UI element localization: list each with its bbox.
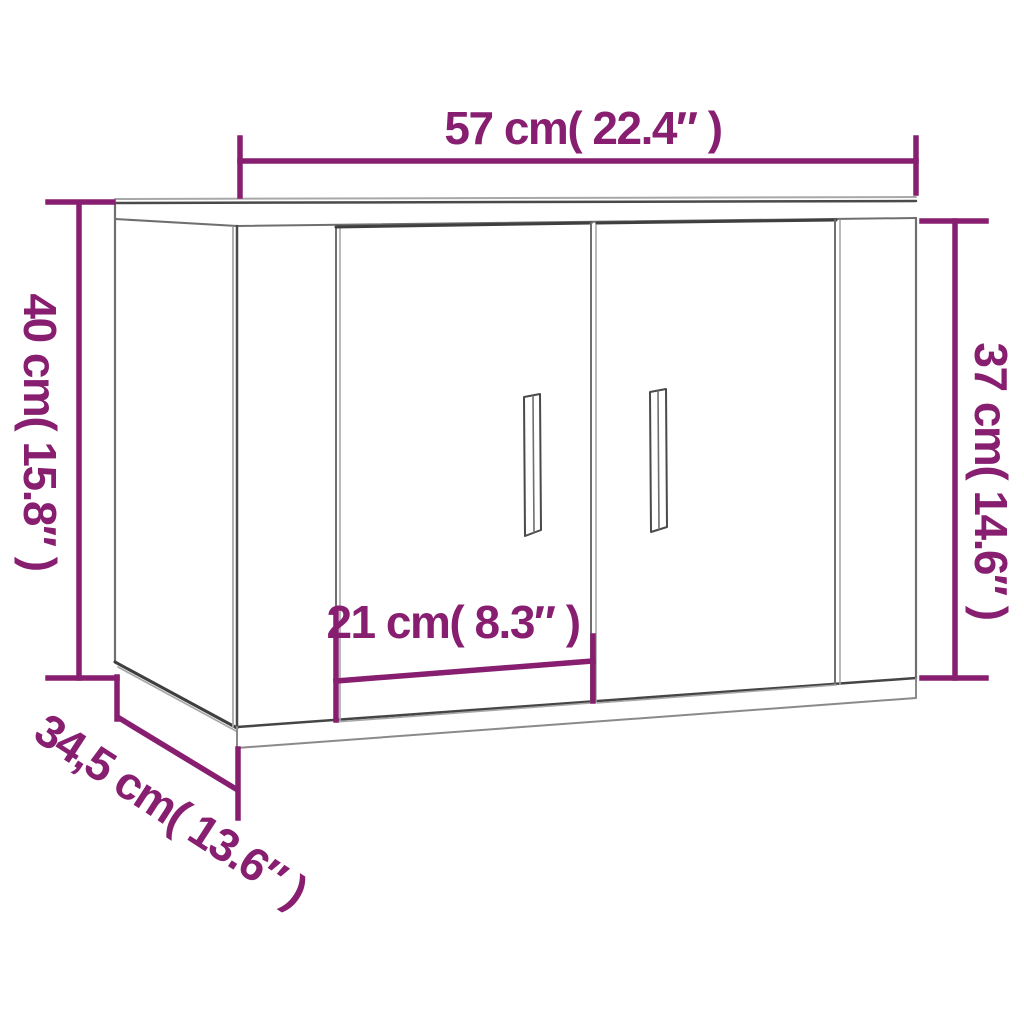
cabinet-bottom-strip — [237, 678, 916, 748]
dimension-diagram-canvas: 57 cm( 22.4″ ) 40 cm( 15.8″ ) 37 cm( 14.… — [0, 0, 1024, 1024]
cabinet-right-door — [597, 220, 840, 703]
dimension-height-right-label: 37 cm( 14.6″ ) — [964, 342, 1018, 619]
door-handle-left — [524, 394, 541, 536]
cabinet-door-divider — [591, 223, 596, 702]
door-handle-right — [650, 389, 667, 532]
dimension-width-label: 57 cm( 22.4″ ) — [444, 101, 721, 155]
cabinet-side-panel — [115, 203, 237, 731]
dimension-height-left-label: 40 cm( 15.8″ ) — [13, 293, 67, 570]
dimension-door-width-label: 21 cm( 8.3″ ) — [326, 595, 579, 649]
